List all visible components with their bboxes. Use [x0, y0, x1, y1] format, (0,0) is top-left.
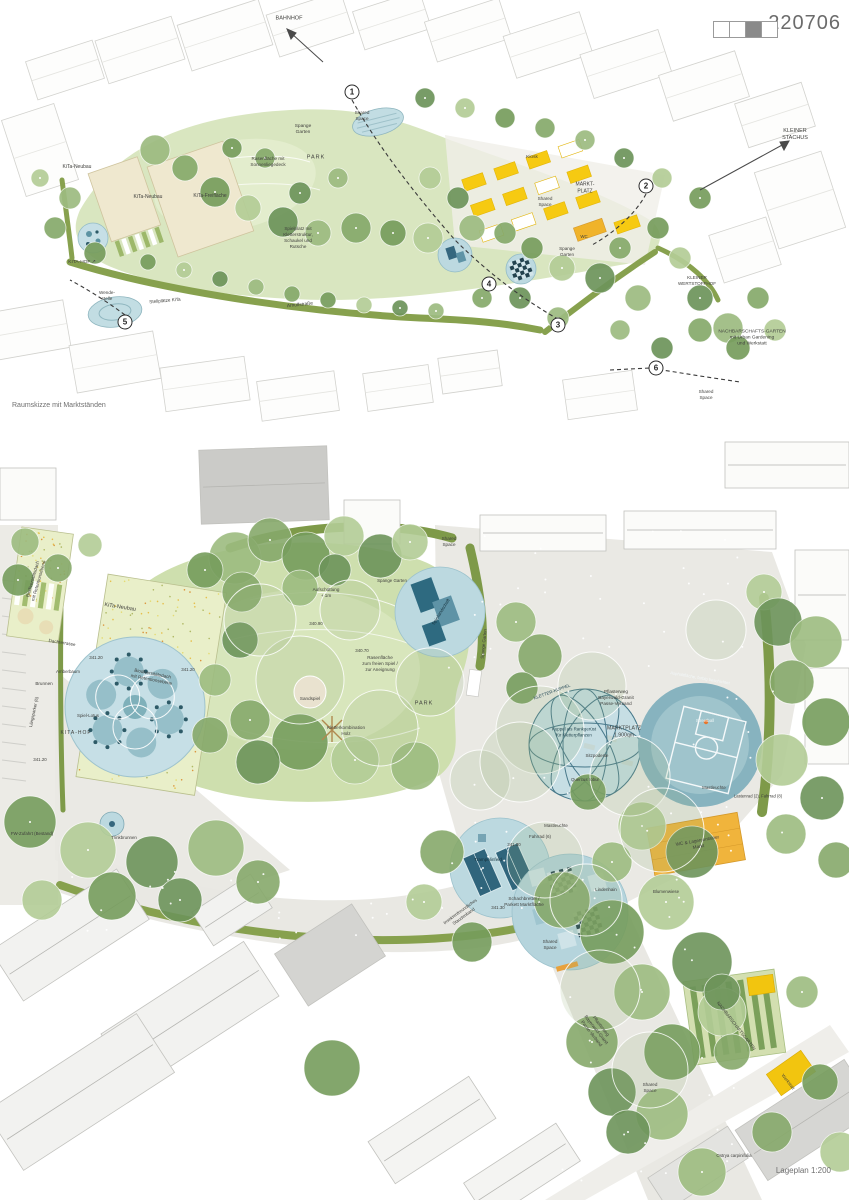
sketch-panel: BAHNHOFKLEINER STACHUSKiTa-NeubauKiTa-Ne… [0, 0, 849, 430]
play-structure-circle [395, 567, 485, 657]
competition-board: 220706 [0, 0, 849, 1200]
fountain-circle [65, 637, 205, 777]
plan-caption: Lageplan 1:200 [776, 1166, 831, 1175]
sand-play [294, 676, 326, 708]
stachus-arrow-icon [780, 141, 789, 150]
plan-illustration [0, 430, 849, 1200]
plan-panel: Biodiversitätsdach mit RetentionsebeneKi… [0, 430, 849, 1200]
sketch-caption: Raumskizze mit Marktständen [12, 402, 106, 409]
sketch-illustration [0, 0, 849, 430]
drinking-fountain-center [109, 821, 115, 827]
